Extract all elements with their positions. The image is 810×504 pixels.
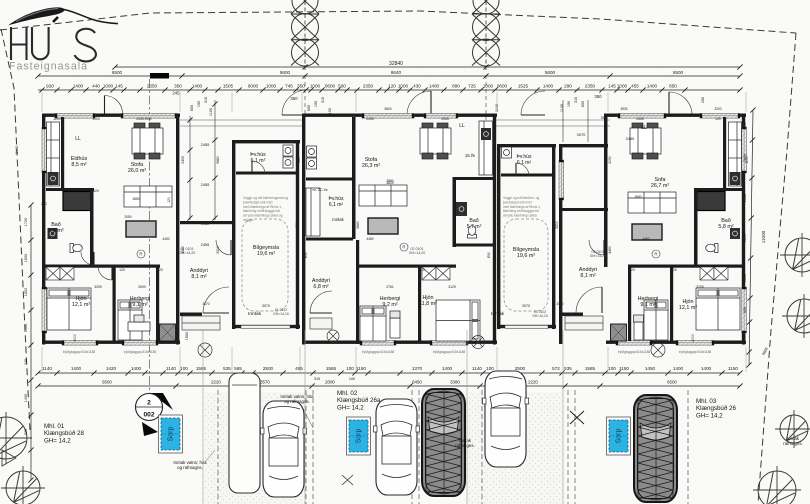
svg-text:3300: 3300 — [216, 246, 220, 254]
svg-text:þverfastast eðli möri: þverfastast eðli möri — [243, 199, 273, 204]
svg-text:11000: 11000 — [761, 230, 766, 243]
svg-text:1450: 1450 — [645, 366, 656, 371]
svg-text:Eldhús8,5 m²: Eldhús8,5 m² — [71, 156, 88, 168]
svg-text:1100: 1100 — [560, 104, 564, 112]
svg-text:3129: 3129 — [448, 285, 456, 289]
svg-text:120: 120 — [167, 197, 171, 203]
svg-text:Fasteignasala: Fasteignasala — [9, 61, 88, 73]
svg-text:3300: 3300 — [555, 221, 559, 229]
svg-text:1505: 1505 — [223, 84, 234, 89]
svg-text:1000: 1000 — [483, 84, 494, 89]
svg-text:3200: 3200 — [696, 285, 704, 289]
svg-text:120: 120 — [419, 268, 425, 272]
svg-text:6500: 6500 — [667, 380, 677, 385]
svg-text:1420: 1420 — [106, 366, 117, 371]
svg-text:3250: 3250 — [94, 285, 102, 289]
svg-text:1400: 1400 — [192, 84, 203, 89]
svg-text:535: 535 — [564, 366, 572, 371]
svg-text:Inntak: Inntak — [491, 311, 505, 317]
svg-text:310: 310 — [204, 97, 208, 103]
svg-text:nr. 2C l/s: nr. 2C l/s — [313, 188, 328, 192]
svg-text:2455: 2455 — [626, 136, 635, 141]
svg-text:R: R — [139, 252, 142, 257]
svg-text:LL: LL — [459, 123, 465, 129]
svg-text:100: 100 — [486, 366, 494, 371]
svg-text:190: 190 — [314, 101, 318, 107]
svg-text:1500: 1500 — [24, 254, 28, 262]
svg-text:1400: 1400 — [701, 366, 712, 371]
svg-text:4480: 4480 — [642, 237, 649, 241]
svg-text:100: 100 — [349, 377, 355, 381]
svg-text:1602: 1602 — [24, 288, 28, 296]
svg-text:245: 245 — [172, 91, 180, 96]
svg-text:þverfastast eðli möri: þverfastast eðli möri — [503, 199, 532, 204]
svg-text:1100: 1100 — [745, 156, 749, 163]
svg-text:2455: 2455 — [201, 182, 210, 187]
svg-text:3380: 3380 — [450, 380, 460, 385]
svg-text:2500: 2500 — [263, 366, 274, 371]
svg-text:440: 440 — [92, 84, 100, 89]
svg-text:02 0101GH=14,20: 02 0101GH=14,20 — [409, 247, 425, 255]
svg-text:3570: 3570 — [260, 380, 270, 385]
svg-text:4450: 4450 — [162, 237, 169, 241]
svg-text:1140: 1140 — [166, 366, 176, 371]
svg-text:Herbergi9,1 m²: Herbergi9,1 m² — [638, 296, 659, 308]
svg-text:4000: 4000 — [73, 334, 77, 342]
svg-text:2050: 2050 — [124, 215, 131, 219]
svg-text:2220: 2220 — [211, 380, 221, 385]
svg-text:5880: 5880 — [356, 221, 360, 229]
svg-text:1720: 1720 — [24, 218, 28, 226]
svg-text:1150: 1150 — [619, 366, 629, 371]
svg-text:Anddyri6,8 m²: Anddyri6,8 m² — [312, 278, 330, 290]
svg-text:3440: 3440 — [15, 146, 19, 154]
svg-text:1400: 1400 — [647, 84, 658, 89]
svg-text:745: 745 — [285, 84, 293, 89]
svg-text:5800: 5800 — [384, 107, 391, 111]
svg-text:Inntak vatns, hitaog rafmagns.: Inntak vatns, hitaog rafmagns. — [280, 394, 314, 404]
svg-text:Þjóðgluggap 816x1188: Þjóðgluggap 816x1188 — [433, 349, 466, 354]
svg-text:465: 465 — [295, 366, 303, 371]
svg-text:að ystu klæðningu þaka: að ystu klæðningu þaka — [503, 213, 537, 218]
svg-text:1000: 1000 — [92, 117, 100, 121]
svg-text:3200: 3200 — [53, 117, 60, 121]
svg-text:310: 310 — [574, 97, 578, 103]
svg-text:Þjóðgluggap 816x1188: Þjóðgluggap 816x1188 — [679, 349, 712, 354]
svg-text:1400: 1400 — [429, 84, 440, 89]
svg-text:3930: 3930 — [144, 117, 151, 121]
svg-text:8640: 8640 — [391, 70, 402, 75]
svg-text:1000: 1000 — [398, 84, 409, 89]
svg-text:2220: 2220 — [528, 380, 538, 385]
svg-text:Inntak: Inntak — [248, 311, 262, 317]
svg-text:E90: E90 — [232, 222, 236, 228]
svg-text:6000: 6000 — [248, 84, 259, 89]
svg-text:1585: 1585 — [326, 366, 337, 371]
svg-text:E90: E90 — [295, 222, 299, 228]
svg-text:3880: 3880 — [132, 197, 139, 201]
svg-text:R: R — [654, 252, 657, 257]
svg-text:1000: 1000 — [310, 84, 321, 89]
svg-text:klæðning veðfrauggja nái: klæðning veðfrauggja nái — [243, 208, 280, 213]
svg-text:2465: 2465 — [201, 222, 209, 226]
svg-text:190: 190 — [567, 101, 571, 107]
svg-text:1000: 1000 — [103, 84, 114, 89]
svg-text:klæðning veðfrauggja nái: klæðning veðfrauggja nái — [503, 208, 539, 213]
svg-text:725: 725 — [468, 84, 476, 89]
svg-text:250: 250 — [41, 202, 47, 206]
svg-text:2455: 2455 — [181, 156, 185, 164]
svg-text:250: 250 — [701, 97, 705, 103]
svg-text:3880: 3880 — [386, 179, 393, 183]
svg-text:1140: 1140 — [42, 366, 52, 371]
svg-text:0600: 0600 — [497, 84, 508, 89]
svg-text:Veggir og loft klæðnm. og: Veggir og loft klæðnm. og — [503, 195, 539, 200]
svg-text:2455: 2455 — [201, 242, 210, 247]
svg-text:E90: E90 — [304, 252, 308, 258]
svg-text:350: 350 — [290, 96, 298, 101]
svg-text:E90: E90 — [487, 252, 491, 258]
svg-text:2070: 2070 — [556, 302, 563, 306]
svg-text:LL: LL — [641, 125, 647, 131]
svg-text:1400: 1400 — [24, 324, 28, 332]
svg-text:2500: 2500 — [515, 366, 526, 371]
svg-text:1692: 1692 — [743, 194, 747, 202]
svg-text:145: 145 — [115, 84, 123, 89]
svg-text:248: 248 — [24, 359, 28, 365]
svg-text:1000: 1000 — [266, 84, 277, 89]
svg-text:0600: 0600 — [325, 84, 336, 89]
svg-text:3070: 3070 — [577, 132, 586, 137]
svg-text:2350: 2350 — [147, 84, 158, 89]
svg-text:Herbergi9,1 m²: Herbergi9,1 m² — [130, 296, 151, 308]
svg-text:1140: 1140 — [472, 366, 482, 371]
svg-text:2455: 2455 — [366, 117, 374, 121]
svg-text:03 0102GH=14,10: 03 0102GH=14,10 — [532, 310, 548, 318]
svg-text:1370: 1370 — [412, 366, 423, 371]
svg-text:2455: 2455 — [636, 117, 644, 121]
svg-text:3670: 3670 — [256, 140, 264, 144]
svg-text:veggja.: veggja. — [243, 218, 254, 222]
svg-text:4480: 4480 — [366, 237, 373, 241]
svg-text:5600: 5600 — [545, 70, 556, 75]
svg-text:1400: 1400 — [24, 394, 28, 402]
svg-text:4000: 4000 — [691, 334, 695, 342]
svg-text:2070: 2070 — [202, 302, 209, 306]
svg-text:1100: 1100 — [209, 108, 213, 116]
svg-text:með klæðningu af Rimis 1,: með klæðningu af Rimis 1, — [503, 204, 541, 209]
svg-text:3670: 3670 — [520, 144, 528, 148]
svg-text:1400: 1400 — [442, 366, 453, 371]
svg-text:32840: 32840 — [389, 61, 403, 67]
svg-text:2455: 2455 — [441, 117, 449, 121]
svg-text:1150: 1150 — [728, 366, 738, 371]
svg-text:120: 120 — [157, 268, 163, 272]
svg-text:01 0102GH=14,10: 01 0102GH=14,10 — [273, 308, 289, 316]
svg-text:1400: 1400 — [673, 366, 684, 371]
svg-text:Anddyri8,1 m²: Anddyri8,1 m² — [190, 268, 208, 280]
svg-text:100: 100 — [608, 366, 616, 371]
svg-text:100: 100 — [180, 366, 188, 371]
svg-text:3930: 3930 — [620, 107, 627, 111]
svg-text:310: 310 — [321, 97, 325, 103]
svg-text:1150: 1150 — [356, 366, 366, 371]
svg-text:1600: 1600 — [743, 234, 747, 242]
svg-text:5880: 5880 — [216, 156, 220, 164]
svg-text:2690: 2690 — [138, 285, 146, 289]
svg-text:3200: 3200 — [714, 107, 721, 111]
svg-text:1525: 1525 — [518, 84, 529, 89]
svg-text:með klæðningu af Rimis 1,: með klæðningu af Rimis 1, — [243, 204, 282, 209]
svg-text:Veggir og loft klæðningsmál og: Veggir og loft klæðningsmál og — [243, 195, 288, 200]
svg-text:1400: 1400 — [131, 366, 142, 371]
svg-text:2: 2 — [147, 400, 151, 407]
svg-text:Inntak: Inntak — [332, 217, 344, 222]
svg-text:3070: 3070 — [522, 304, 530, 308]
svg-text:1400: 1400 — [71, 366, 82, 371]
svg-text:Þv.hús6,1 m²: Þv.hús6,1 m² — [517, 154, 532, 166]
svg-text:að ystu klæðningu þaka og: að ystu klæðningu þaka og — [243, 213, 283, 218]
svg-text:455: 455 — [631, 84, 639, 89]
svg-text:1500: 1500 — [185, 332, 189, 340]
svg-text:Sorp: Sorp — [168, 427, 175, 442]
svg-text:100: 100 — [346, 366, 354, 371]
svg-text:002: 002 — [143, 412, 154, 419]
svg-text:1585: 1585 — [585, 366, 596, 371]
svg-text:Sorp: Sorp — [356, 429, 363, 444]
svg-text:2350: 2350 — [585, 84, 596, 89]
svg-text:2000: 2000 — [325, 380, 335, 385]
svg-text:120: 120 — [119, 268, 125, 272]
svg-text:Þjóðgluggap 816x1188: Þjóðgluggap 816x1188 — [63, 349, 96, 354]
svg-text:3070: 3070 — [262, 304, 270, 308]
svg-text:2455: 2455 — [201, 142, 210, 147]
svg-text:6500: 6500 — [112, 70, 123, 75]
svg-text:190: 190 — [197, 101, 201, 107]
svg-text:600: 600 — [581, 101, 585, 107]
svg-text:120: 120 — [715, 117, 721, 121]
svg-text:6450: 6450 — [412, 380, 422, 385]
svg-text:1000: 1000 — [617, 84, 628, 89]
svg-text:6500: 6500 — [102, 380, 112, 385]
svg-text:R: R — [402, 245, 405, 250]
svg-text:350: 350 — [594, 94, 602, 99]
svg-text:Inntak vatns; hitaog rafmagns.: Inntak vatns; hitaog rafmagns. — [173, 460, 207, 470]
svg-text:Anddyri8,1 m²: Anddyri8,1 m² — [579, 267, 597, 279]
svg-text:2455: 2455 — [136, 117, 144, 121]
svg-text:4450: 4450 — [181, 246, 185, 254]
svg-text:Þv.hús6,1 m²: Þv.hús6,1 m² — [250, 152, 266, 164]
svg-text:920: 920 — [46, 84, 54, 89]
svg-text:2350: 2350 — [363, 84, 374, 89]
svg-text:120: 120 — [629, 268, 635, 272]
svg-text:4450: 4450 — [608, 246, 612, 254]
svg-text:1585: 1585 — [196, 366, 207, 371]
svg-text:6500: 6500 — [673, 70, 684, 75]
svg-text:Þjóðgluggap 816x1188: Þjóðgluggap 816x1188 — [124, 349, 157, 354]
svg-text:920: 920 — [24, 429, 28, 435]
svg-text:1610: 1610 — [743, 274, 747, 282]
svg-text:LL: LL — [75, 136, 81, 142]
svg-text:15 l/s: 15 l/s — [465, 153, 475, 158]
svg-text:1400: 1400 — [543, 84, 554, 89]
svg-text:600: 600 — [743, 307, 747, 313]
svg-text:572: 572 — [552, 366, 560, 371]
svg-text:600: 600 — [307, 105, 311, 111]
svg-text:2090: 2090 — [608, 156, 612, 164]
svg-text:Herbergi9,2 m²: Herbergi9,2 m² — [380, 296, 401, 308]
svg-text:350: 350 — [174, 84, 182, 89]
svg-text:120: 120 — [671, 268, 677, 272]
svg-text:565: 565 — [234, 366, 242, 371]
svg-text:1400: 1400 — [73, 84, 84, 89]
svg-text:315: 315 — [314, 377, 320, 381]
svg-text:310: 310 — [297, 157, 301, 163]
svg-text:600: 600 — [190, 105, 194, 111]
svg-text:Þjóðgluggap 816x1188: Þjóðgluggap 816x1188 — [362, 349, 395, 354]
svg-text:500: 500 — [338, 84, 346, 89]
svg-text:120: 120 — [93, 189, 99, 193]
svg-text:3880: 3880 — [634, 195, 641, 199]
svg-text:2761: 2761 — [386, 285, 394, 289]
svg-text:Þjóðgluggap 816x1188: Þjóðgluggap 816x1188 — [618, 349, 651, 354]
svg-text:Sorp: Sorp — [616, 429, 623, 444]
svg-text:890: 890 — [452, 84, 460, 89]
svg-text:535: 535 — [223, 366, 231, 371]
svg-text:850: 850 — [669, 84, 677, 89]
svg-text:145: 145 — [608, 84, 616, 89]
svg-text:290: 290 — [564, 84, 572, 89]
svg-text:5600: 5600 — [280, 70, 291, 75]
svg-text:850: 850 — [743, 122, 747, 128]
svg-text:1400: 1400 — [743, 334, 747, 342]
svg-text:Þv.hús6,1 m²: Þv.hús6,1 m² — [329, 196, 344, 208]
svg-text:430: 430 — [413, 84, 421, 89]
